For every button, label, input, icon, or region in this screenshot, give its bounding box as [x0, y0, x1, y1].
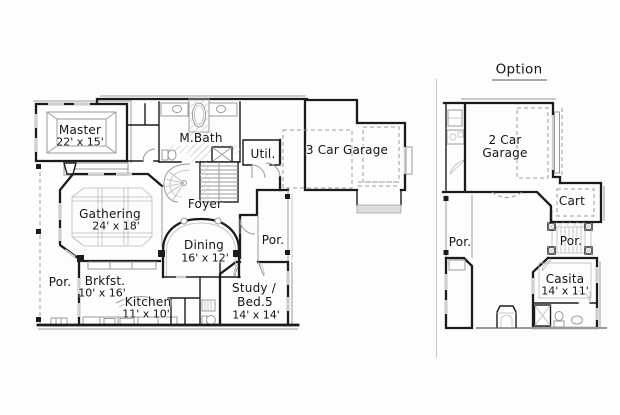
room-label-porch-side: Por. — [49, 276, 72, 288]
room-dims-study: 14' x 14' — [232, 310, 280, 321]
room-label-garage-3car: 3 Car Garage — [306, 144, 388, 156]
room-label-garage2-line2: Garage — [482, 147, 527, 159]
room-label-master: Master — [59, 124, 101, 136]
room-label-kitchen: Kitchen — [125, 296, 172, 308]
casita-shower — [535, 305, 551, 326]
room-label-foyer: Foyer — [188, 198, 222, 210]
room-label-porch-opt-left: Por. — [449, 236, 472, 248]
casita-toilet — [554, 312, 564, 328]
house-fragment — [446, 103, 465, 190]
fountain — [497, 306, 516, 327]
room-label-cart: Cart — [559, 195, 585, 207]
bay-room-fragment — [446, 258, 472, 328]
driveway-pad — [357, 205, 401, 213]
fireplace — [64, 163, 76, 174]
room-dims-casita: 14' x 11' — [541, 286, 589, 297]
room-dims-kitchen: 11' x 10' — [122, 309, 170, 320]
room-label-study-line1: Study / — [232, 282, 276, 294]
sink-left — [173, 106, 182, 113]
column — [181, 218, 187, 224]
room-label-garage2-line1: 2 Car — [488, 134, 521, 146]
room-dims-brkfst: 10' x 16' — [78, 288, 126, 299]
option-section-title: Option — [496, 63, 543, 77]
room-dims-gathering: 24' x 18' — [92, 221, 140, 232]
room-label-util: Util. — [251, 148, 276, 160]
stairs — [163, 162, 238, 202]
room-label-porch-opt-right: Por. — [560, 235, 583, 247]
breezeway-roof — [283, 130, 352, 188]
room-label-study-line2: Bed.5 — [237, 296, 273, 308]
bay-window — [88, 262, 156, 269]
garage-door-opening — [555, 112, 560, 173]
option-plan — [437, 79, 608, 358]
room-dims-master: 22' x 15' — [56, 137, 104, 148]
casita-sink — [572, 316, 583, 324]
room-label-gathering: Gathering — [79, 208, 141, 220]
shower — [212, 147, 232, 162]
closets — [127, 102, 159, 162]
room-label-brkfst: Brkfst. — [85, 275, 126, 287]
room-label-dining: Dining — [184, 239, 224, 251]
column — [215, 218, 221, 224]
room-label-mbath: M.Bath — [179, 132, 222, 144]
room-dims-dining: 16' x 12' — [181, 253, 229, 264]
room-label-casita: Casita — [546, 273, 585, 285]
powder-room — [202, 300, 216, 325]
porch-rear — [258, 190, 292, 262]
garage-side-door — [406, 147, 412, 174]
floor-plan-canvas: Master 22' x 15' M.Bath Util. 3 Car Gara… — [0, 0, 620, 415]
kitchen-sink — [104, 319, 115, 325]
room-label-porch-rear: Por. — [262, 234, 285, 246]
toilet — [162, 150, 176, 160]
sink-right — [217, 106, 226, 113]
